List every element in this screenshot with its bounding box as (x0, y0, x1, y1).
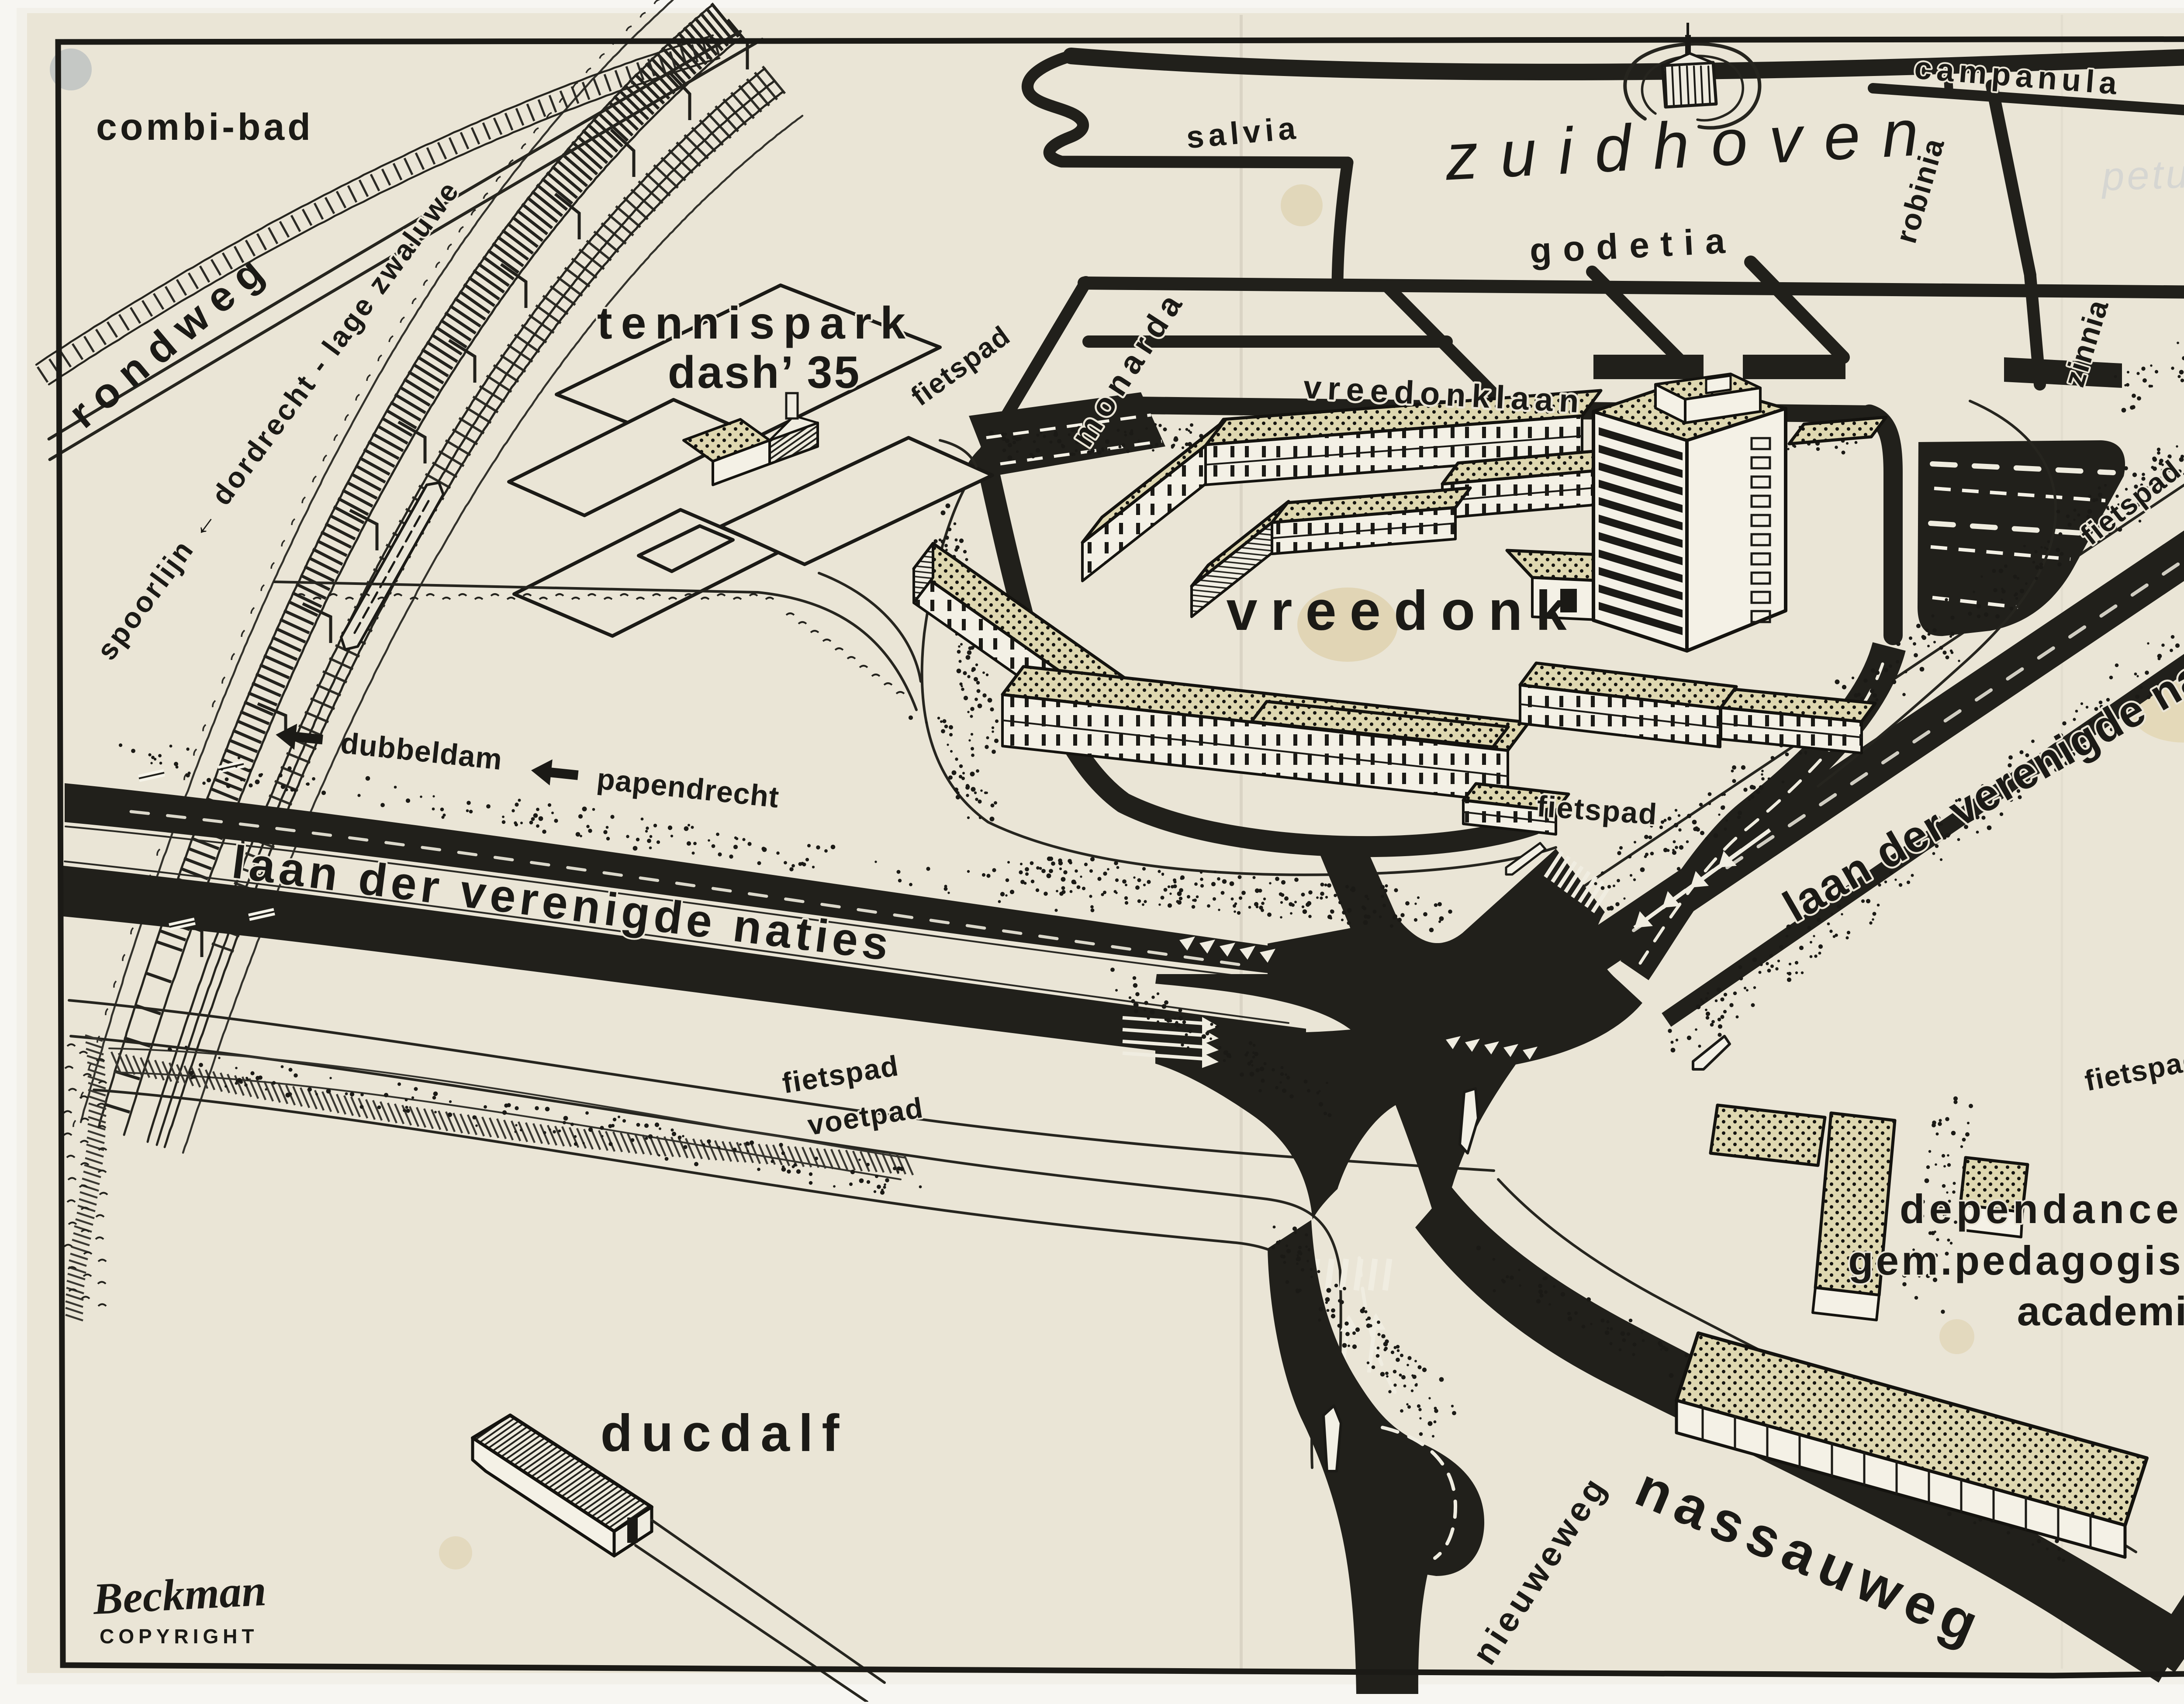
svg-text:combi-bad: combi-bad (96, 106, 314, 148)
svg-text:dependance ): dependance ) (1900, 1186, 2184, 1232)
svg-text:dash’ 35: dash’ 35 (668, 347, 861, 398)
svg-text:academie: academie (2017, 1288, 2184, 1334)
svg-text:gem.pedagogische: gem.pedagogische (1848, 1237, 2184, 1283)
svg-text:tennispark: tennispark (597, 298, 914, 349)
svg-text:petunia: petunia (2100, 149, 2184, 199)
svg-text:Beckman: Beckman (91, 1566, 267, 1624)
svg-text:COPYRIGHT: COPYRIGHT (100, 1625, 258, 1648)
svg-text:vreedonk: vreedonk (1226, 580, 1579, 642)
svg-text:ducdalf: ducdalf (601, 1404, 848, 1462)
